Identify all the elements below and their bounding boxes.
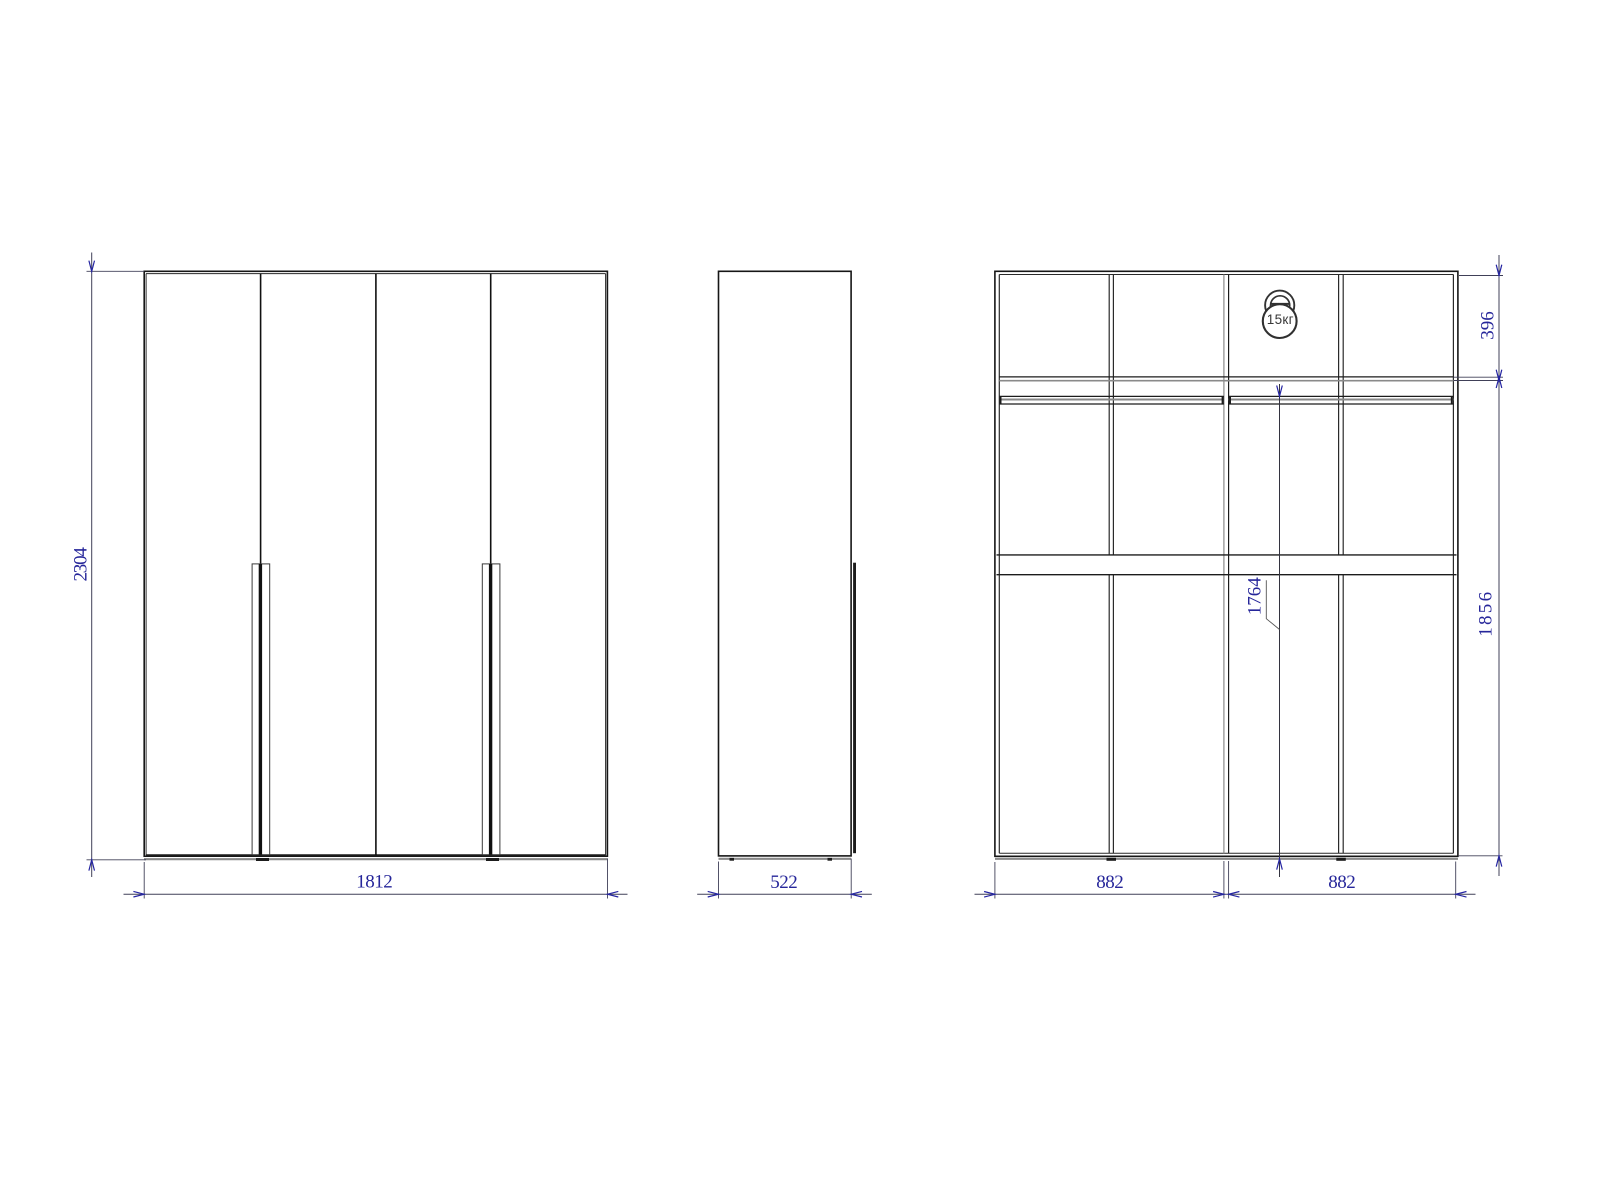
svg-text:522: 522 [770, 872, 797, 893]
svg-text:396: 396 [1478, 311, 1499, 340]
svg-text:1812: 1812 [356, 872, 392, 893]
svg-text:2304: 2304 [71, 547, 92, 582]
svg-text:1856: 1856 [1475, 590, 1496, 637]
svg-text:882: 882 [1328, 872, 1355, 893]
svg-text:1764: 1764 [1245, 577, 1266, 616]
svg-text:15кг: 15кг [1267, 312, 1294, 327]
svg-text:882: 882 [1096, 872, 1123, 893]
